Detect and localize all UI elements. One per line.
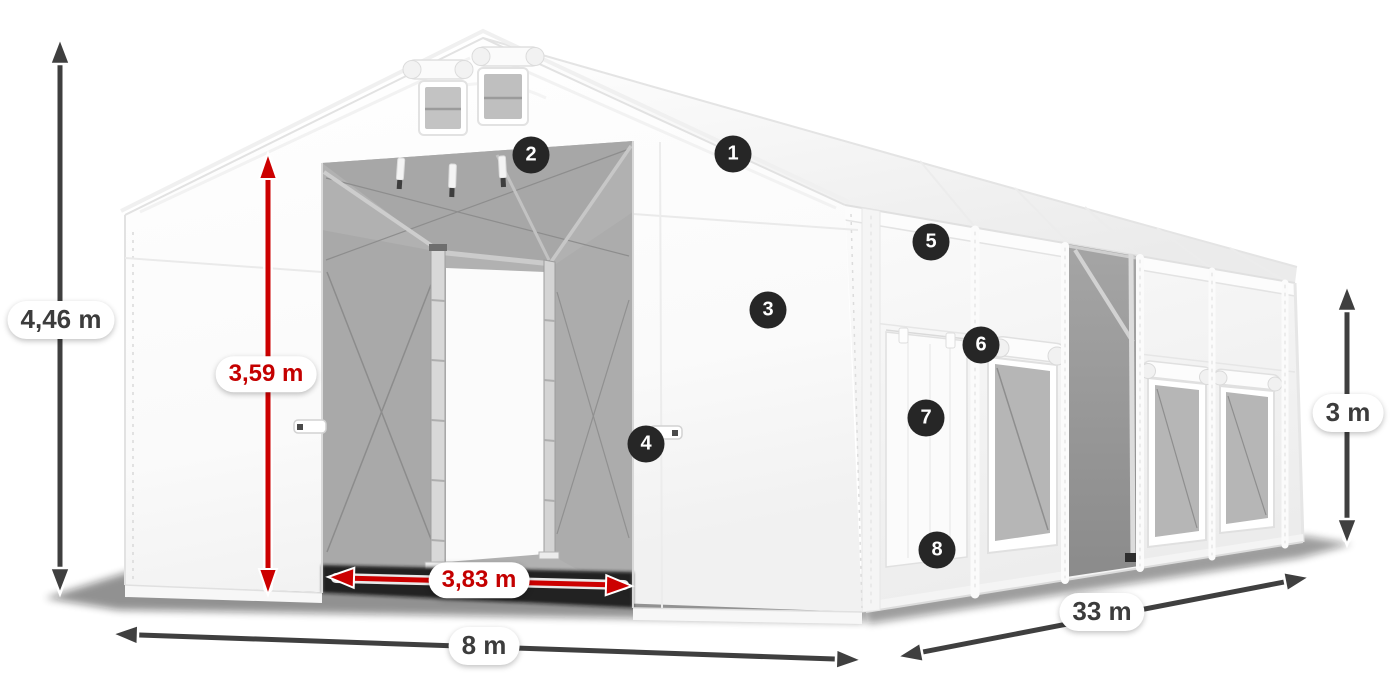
hotspot-6[interactable]: 6 (963, 327, 1000, 364)
dimension-label-side-height: 3 m (1313, 394, 1384, 432)
side-window-1 (988, 336, 1066, 553)
dimension-label-entrance-height: 3,59 m (216, 356, 317, 392)
door-hinge-left (294, 420, 326, 433)
side-window-2 (1141, 360, 1215, 547)
dimension-label-front-width: 8 m (449, 627, 520, 665)
dimension-label-total-height: 4,46 m (8, 301, 115, 339)
rear-opening (446, 268, 545, 562)
hotspot-8[interactable]: 8 (919, 532, 956, 569)
hotspot-3[interactable]: 3 (750, 292, 787, 329)
side-window-3 (1213, 369, 1282, 533)
hotspot-4[interactable]: 4 (628, 426, 665, 463)
hotspot-7[interactable]: 7 (908, 400, 945, 437)
side-door (886, 328, 967, 567)
tent-dimensions-diagram: 4,46 m 3,59 m 3,83 m 8 m 33 m 3 m 1 2 3 … (0, 0, 1400, 700)
entrance-opening (322, 141, 633, 608)
hotspot-2[interactable]: 2 (513, 137, 550, 174)
dimension-label-side-length: 33 m (1059, 593, 1144, 631)
dimension-label-entrance-width: 3,83 m (429, 562, 530, 598)
hotspot-1[interactable]: 1 (715, 136, 752, 173)
tent-illustration (0, 0, 1400, 700)
hotspot-5[interactable]: 5 (913, 224, 950, 261)
side-open-bay (1066, 244, 1139, 577)
